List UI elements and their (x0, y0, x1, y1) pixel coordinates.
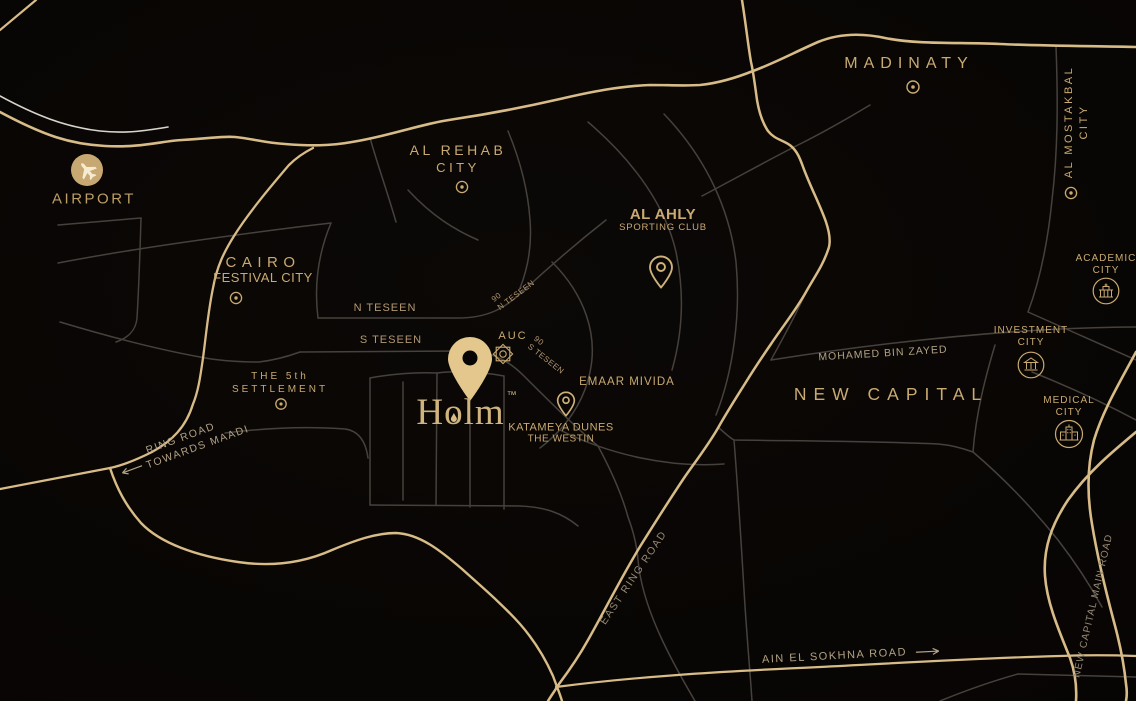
fifth-settlement-label: THE 5th SETTLEMENT (232, 370, 328, 396)
new-capital-label: NEW CAPITAL (794, 384, 988, 406)
investment-city-label: INVESTMENT CITY (994, 325, 1068, 349)
road-bottomright-connector (940, 674, 1018, 701)
right-arrow-icon (916, 647, 942, 657)
al-rehab-marker[interactable] (455, 180, 470, 195)
madinaty-marker[interactable] (905, 79, 921, 95)
road-newcapital-southeast (973, 452, 1102, 607)
road-mostakbal-vertical (1028, 46, 1057, 312)
airport-label: AIRPORT (52, 191, 136, 210)
emaar-mivida-label: EMAAR MIVIDA (579, 375, 675, 389)
road-east-horizontal (719, 428, 973, 452)
madinaty-label: MADINATY (844, 54, 973, 74)
road-rehab-inner-2 (370, 138, 396, 222)
al-ahly-label: AL AHLY SPORTING CLUB (619, 208, 707, 234)
road-gold-ring-southeast (110, 468, 562, 701)
holm-wordmark: Holm™ (416, 390, 517, 434)
katameya-dunes-label: KATAMEYA DUNES THE WESTIN (508, 421, 613, 446)
cairo-festival-marker[interactable] (229, 291, 244, 306)
road-arc-rehab (508, 131, 531, 288)
medical-city-icon[interactable] (1054, 419, 1084, 449)
auc-label: AUC (498, 330, 527, 344)
road-madinaty-diagonal (702, 105, 870, 196)
airport-plane-icon[interactable] (70, 153, 104, 187)
road-light-topleft (0, 96, 168, 132)
location-map: AIRPORT MADINATY AL MOSTAKBAL CITY AL RE… (0, 0, 1136, 701)
road-arc-northeast-2 (664, 114, 737, 415)
left-arrow-icon (120, 462, 144, 478)
holm-trademark: ™ (507, 390, 518, 401)
road-airport-quad-right (116, 218, 141, 342)
al-ahly-pin[interactable] (648, 256, 674, 289)
road-gold-new-capital-main-east (1088, 352, 1136, 701)
road-gold-east-ring (548, 0, 830, 701)
al-mostakbal-marker[interactable] (1064, 186, 1079, 201)
road-rehab-inner-1 (408, 190, 478, 240)
road-airport-quad-top (58, 218, 141, 225)
katameya-dunes-pin[interactable] (556, 392, 576, 417)
s-teseen-label: S TESEEN (360, 334, 422, 348)
n-teseen-label: N TESEEN (354, 302, 417, 316)
academic-city-icon[interactable] (1092, 277, 1120, 305)
fifth-settlement-marker[interactable] (274, 397, 288, 411)
academic-city-label: ACADEMIC CITY (1076, 253, 1136, 277)
holm-flame-mark (450, 389, 457, 432)
al-mostakbal-city-label: AL MOSTAKBAL CITY (1062, 66, 1092, 179)
road-airport-quad-bottom (60, 322, 300, 362)
road-east-vertical (734, 440, 752, 701)
road-gold-topleft-corner (0, 0, 36, 30)
cairo-festival-city-label: CAIRO FESTIVAL CITY (213, 255, 313, 285)
road-gold-festival-city (0, 148, 313, 489)
investment-city-icon[interactable] (1017, 351, 1045, 379)
medical-city-label: MEDICAL CITY (1043, 395, 1094, 419)
road-arc-northeast-1 (588, 122, 681, 370)
road-grid-bottom (370, 505, 578, 526)
al-rehab-city-label: AL REHAB CITY (410, 142, 507, 176)
road-network (0, 0, 1136, 701)
road-west-ring-arc (317, 223, 331, 318)
road-gold-top-main (0, 35, 1136, 147)
